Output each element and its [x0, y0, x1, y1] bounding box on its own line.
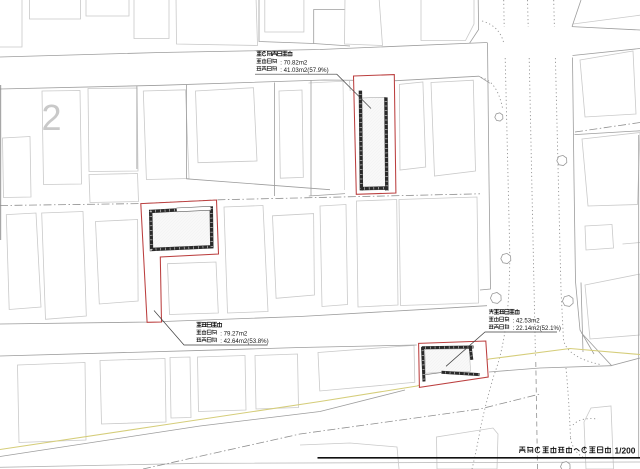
svg-text:: 79.27m2: : 79.27m2: [220, 331, 248, 338]
svg-text:: 42.64m2(53.8%): : 42.64m2(53.8%): [220, 338, 268, 345]
svg-text:: 70.82m2: : 70.82m2: [280, 59, 308, 66]
svg-text:2: 2: [42, 97, 62, 138]
svg-text:: 42.53m2: : 42.53m2: [513, 318, 541, 325]
svg-text:: 41.03m2(57.9%): : 41.03m2(57.9%): [280, 67, 328, 74]
svg-text:: 22.14m2(52.1%): : 22.14m2(52.1%): [513, 325, 561, 332]
svg-text:1/200: 1/200: [615, 445, 636, 455]
